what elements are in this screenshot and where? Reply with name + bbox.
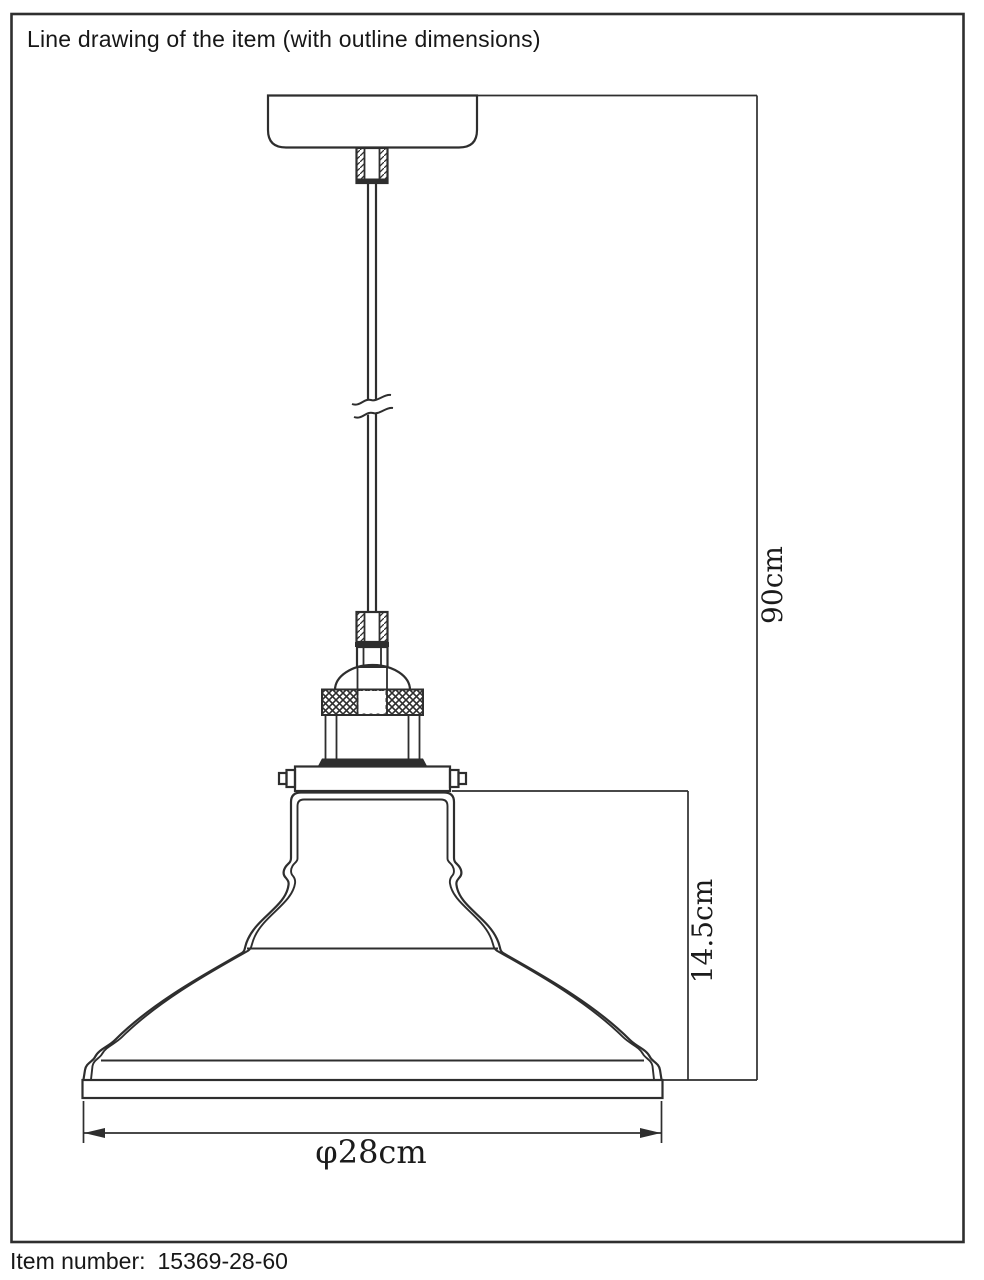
arrowhead-left [84,1128,105,1138]
label-shade-height: 14.5cm [686,879,719,984]
page: Line drawing of the item (with outline d… [0,0,984,1280]
label-shade-diameter: φ28cm [315,1133,426,1171]
item-number-value: 15369-28-60 [158,1248,288,1274]
cord-grip-socket [355,612,389,647]
dimension-shade-height [452,791,688,1080]
arrowhead-right [640,1128,661,1138]
cord-break-symbol [352,395,393,418]
drawing-frame-border [12,14,964,1242]
ceiling-canopy [268,96,477,148]
label-overall-height: 90cm [756,546,789,624]
line-drawing-canvas: 90cm 14.5cm φ28cm [0,0,984,1280]
shade-bottom-rim [83,1080,663,1098]
cord-grip-top [356,148,389,183]
pendant-lamp-drawing [83,96,758,1144]
socket-base-plate [318,759,427,767]
bracket-screw-right [450,770,459,787]
lamp-socket [318,647,427,766]
lamp-shade [83,793,663,1099]
knurled-ring [322,690,423,716]
item-number-row: Item number:15369-28-60 [10,1248,288,1275]
item-number-label: Item number: [10,1248,146,1274]
shade-bracket [279,767,466,792]
bracket-screw-left [287,770,296,787]
suspension-cord [368,183,376,612]
